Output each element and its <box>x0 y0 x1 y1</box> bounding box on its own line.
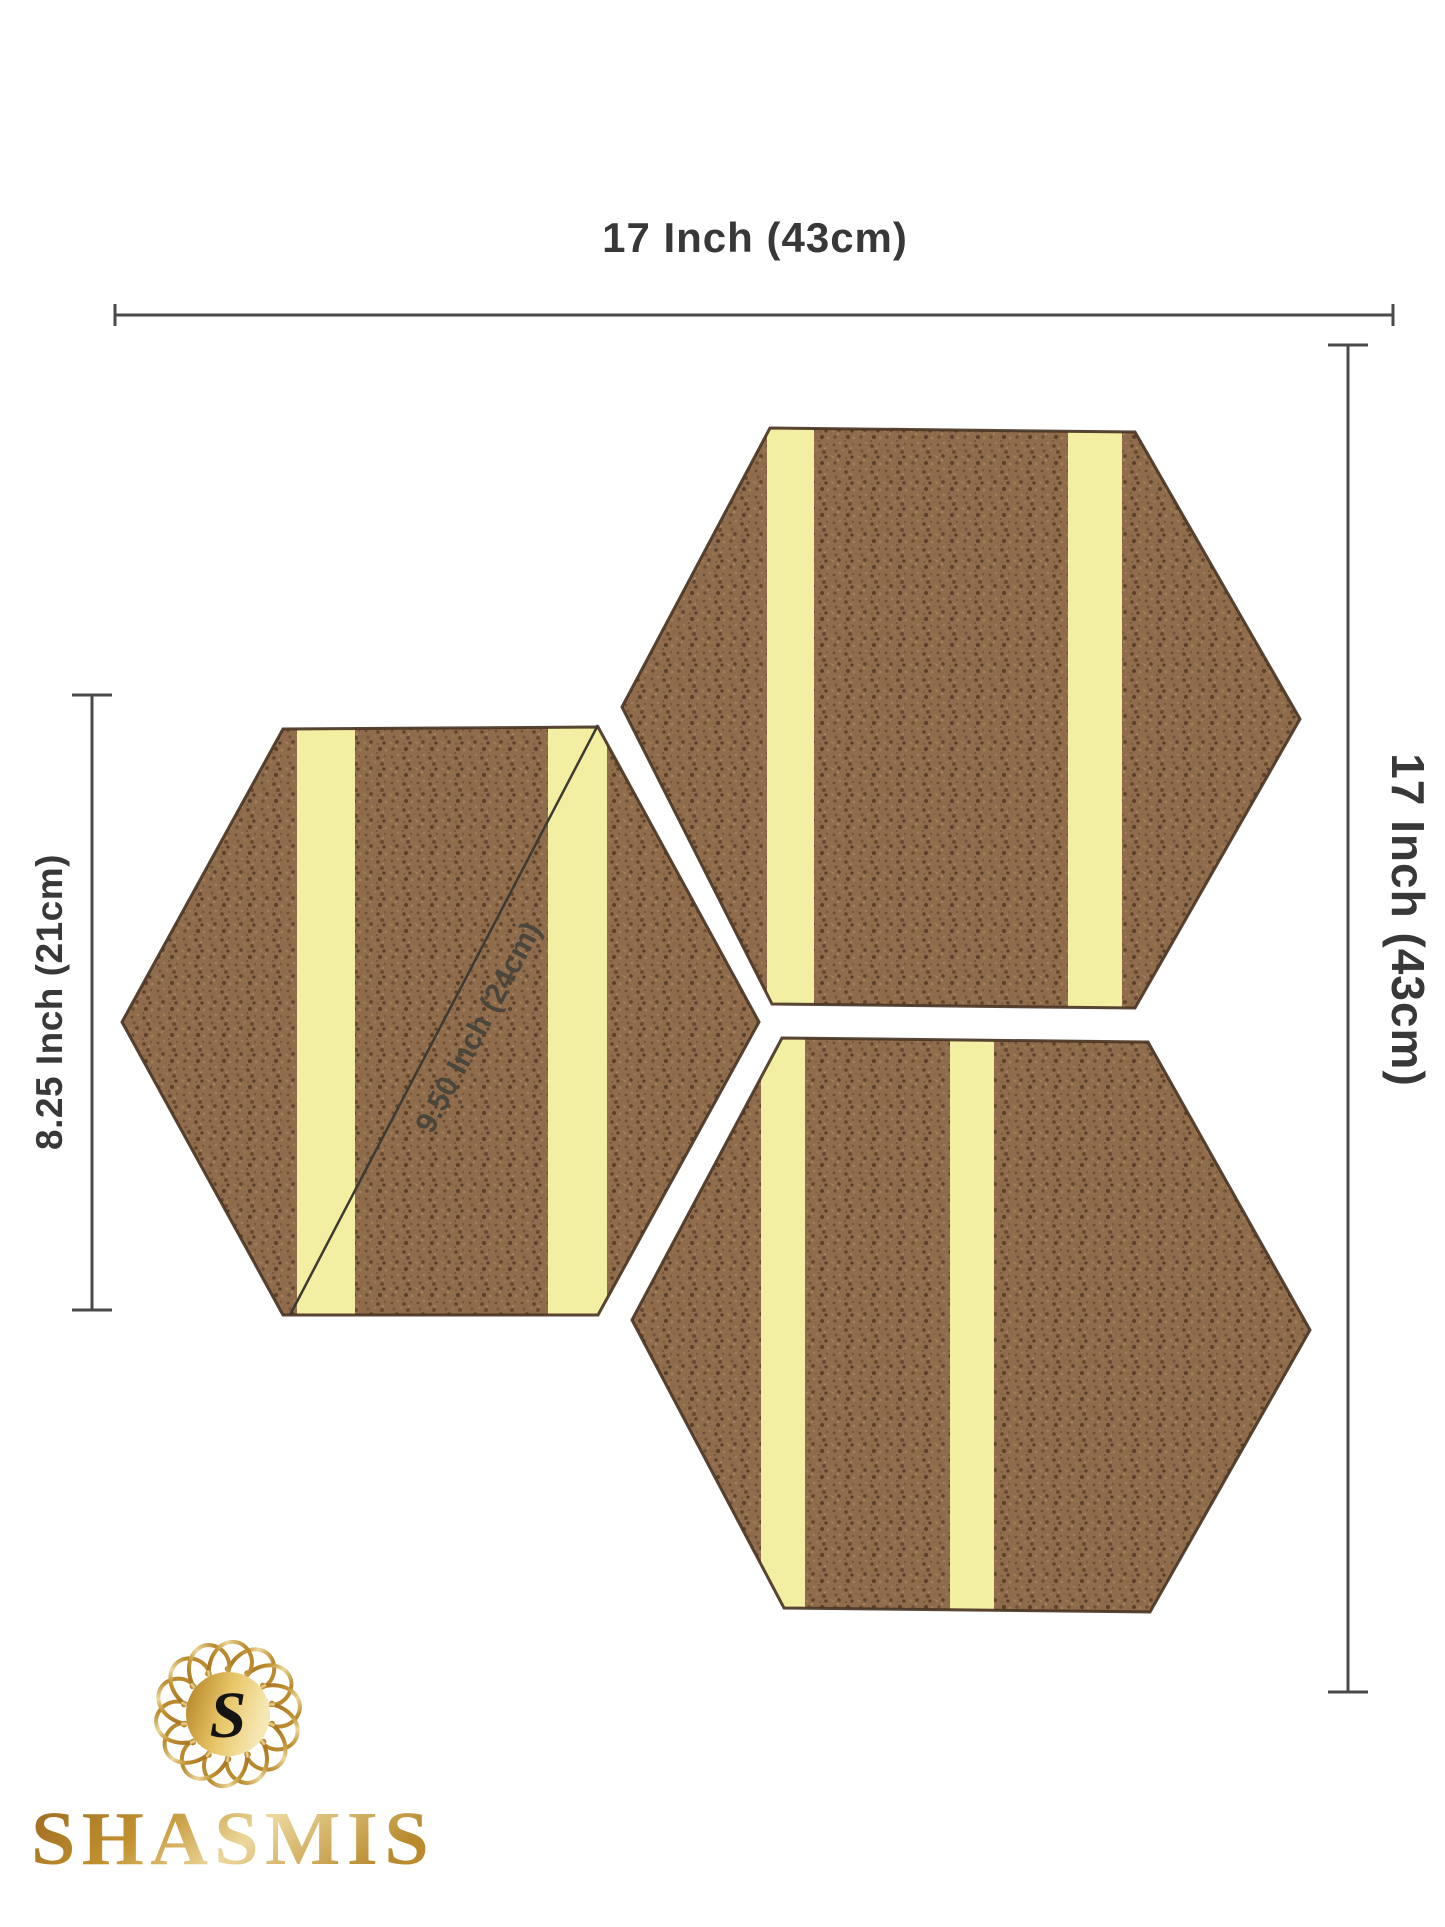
adhesive-strip <box>950 1034 994 1618</box>
logo-monogram: S <box>210 1679 247 1752</box>
adhesive-strip <box>767 424 814 1014</box>
hexagon-panel-top-right <box>622 424 1300 1014</box>
brand-wordmark: SHASMIS <box>31 1797 435 1881</box>
right-dimension-label: 17 Inch (43cm) <box>1382 753 1434 1087</box>
hexagon-panel-left <box>122 720 759 1320</box>
top-dimension-label: 17 Inch (43cm) <box>602 214 908 261</box>
left-dimension-label: 8.25 Inch (21cm) <box>29 854 70 1150</box>
top-dimension: 17 Inch (43cm) <box>115 214 1393 326</box>
dimension-diagram: 17 Inch (43cm) 17 Inch (43cm) 8.25 Inch … <box>0 0 1445 1927</box>
right-dimension-line <box>1328 345 1368 1692</box>
left-dimension: 8.25 Inch (21cm) <box>29 695 112 1310</box>
product-image: 17 Inch (43cm) 17 Inch (43cm) 8.25 Inch … <box>0 0 1445 1927</box>
hexagon-panel-bottom-right <box>632 1034 1310 1618</box>
adhesive-strip <box>1068 424 1122 1014</box>
top-dimension-line <box>115 304 1393 326</box>
adhesive-strip <box>548 720 607 1320</box>
adhesive-strip <box>761 1034 805 1618</box>
adhesive-strip <box>297 720 355 1320</box>
left-dimension-line <box>72 695 112 1310</box>
logo-emblem: S <box>149 1636 308 1793</box>
brand-logo: S SHASMIS <box>31 1636 435 1881</box>
cork-surface <box>122 727 759 1315</box>
right-dimension: 17 Inch (43cm) <box>1328 345 1434 1692</box>
